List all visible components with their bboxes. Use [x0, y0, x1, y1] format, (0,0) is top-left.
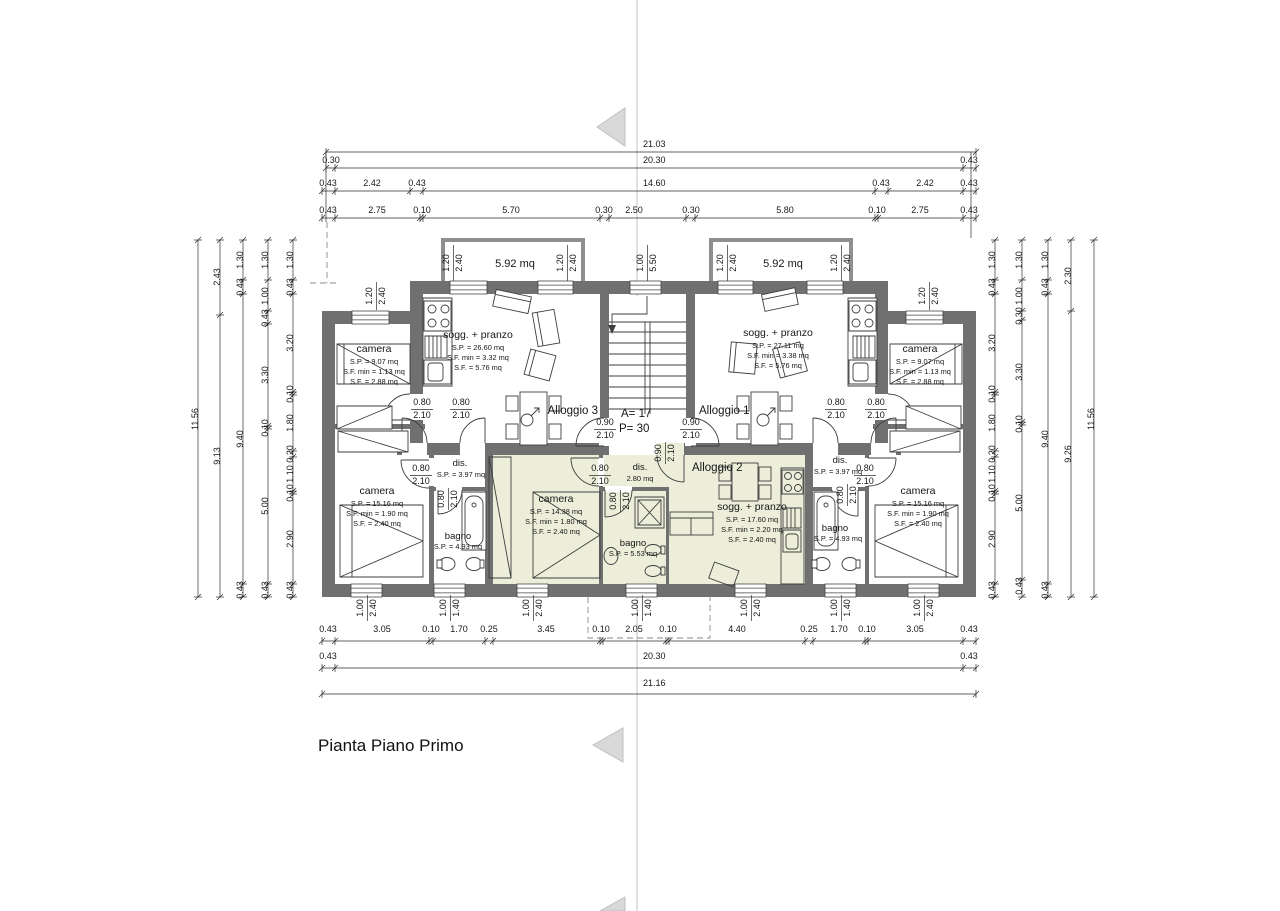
label: 3.20 — [285, 334, 295, 352]
label: S.P. = 15.16 mq — [892, 499, 944, 508]
label: 3.05 — [373, 624, 391, 634]
label: 21.03 — [643, 139, 666, 149]
label: 0.43 — [285, 278, 295, 296]
label: bagno — [822, 523, 848, 534]
label: 0.43 — [1040, 581, 1050, 599]
label: S.P. = 26.60 mq — [452, 343, 504, 352]
label: 1.10 — [987, 465, 997, 483]
kitchen-alloggio1 — [848, 298, 877, 386]
label: 1.20 — [441, 254, 451, 272]
label: 2.40 — [925, 599, 935, 617]
window — [434, 584, 465, 597]
label: 2.90 — [285, 530, 295, 548]
label: S.F. = 5.76 mq — [454, 363, 502, 372]
label: 0.25 — [800, 624, 818, 634]
label: 0.43 — [1014, 577, 1024, 595]
label: 2.75 — [368, 205, 386, 215]
label: 0.43 — [319, 205, 337, 215]
label: 1.00 — [739, 599, 749, 617]
label: camera — [356, 343, 391, 355]
label: 2.30 — [1063, 267, 1073, 285]
window — [450, 281, 487, 294]
label: 0.80 — [413, 397, 431, 407]
label: sogg. + pranzo — [717, 501, 787, 513]
kitchen-alloggio3 — [423, 298, 452, 386]
label: 0.80 — [436, 490, 446, 508]
label: 0.43 — [285, 581, 295, 599]
label: 0.80 — [412, 463, 430, 473]
label: 1.70 — [830, 624, 848, 634]
label: 2.10 — [412, 476, 430, 486]
label: 0.90 — [653, 444, 663, 462]
label: 0.20 — [987, 445, 997, 463]
label: 3.20 — [987, 334, 997, 352]
window — [352, 311, 389, 324]
label: 0.80 — [827, 397, 845, 407]
label: sogg. + pranzo — [443, 329, 513, 341]
label: 1.00 — [635, 254, 645, 272]
label: 1.40 — [842, 599, 852, 617]
label: S.F. = 2.88 mq — [896, 377, 944, 386]
label: 2.10 — [856, 476, 874, 486]
label: bagno — [620, 538, 646, 549]
label: 9.40 — [235, 430, 245, 448]
label: 9.26 — [1063, 445, 1073, 463]
label: S.F. = 2.40 mq — [894, 519, 942, 528]
label: 0.43 — [960, 651, 978, 661]
label: 0.25 — [480, 624, 498, 634]
label: 11.56 — [190, 408, 200, 430]
label: S.F. = 2.88 mq — [350, 377, 398, 386]
label: S.F. = 2.40 mq — [532, 527, 580, 536]
label: 1.00 — [521, 599, 531, 617]
label: 1.40 — [451, 599, 461, 617]
label: 2.40 — [930, 287, 940, 305]
label: 1.30 — [235, 251, 245, 269]
plan-title: Pianta Piano Primo — [318, 736, 464, 756]
label: 1.30 — [1014, 251, 1024, 269]
label: 0.10 — [260, 419, 270, 437]
label: 1.40 — [643, 599, 653, 617]
label: S.F. min = 3.38 mq — [747, 351, 809, 360]
label: 2.40 — [377, 287, 387, 305]
label: 3.45 — [537, 624, 555, 634]
label: 2.10 — [596, 430, 614, 440]
label: 0.10 — [413, 205, 431, 215]
label: 2.40 — [454, 254, 464, 272]
label: 5.80 — [776, 205, 794, 215]
label: 0.10 — [592, 624, 610, 634]
label: 2.40 — [842, 254, 852, 272]
label: S.P. = 3.97 mq — [437, 470, 485, 479]
window — [538, 281, 573, 294]
label: 0.30 — [322, 155, 340, 165]
label: sogg. + pranzo — [743, 327, 813, 339]
label: 21.16 — [643, 678, 666, 688]
label: 0.10 — [422, 624, 440, 634]
label: 0.10 — [659, 624, 677, 634]
label: S.F. min = 1.90 mq — [346, 509, 408, 518]
window — [351, 584, 382, 597]
label: S.P. = 3.97 mq — [814, 467, 862, 476]
label: 1.00 — [438, 599, 448, 617]
label: 0.80 — [835, 486, 845, 504]
label: 1.30 — [987, 251, 997, 269]
label: 5.92 mq — [763, 258, 803, 270]
label: 1.20 — [829, 254, 839, 272]
label: 1.20 — [555, 254, 565, 272]
label: 0.43 — [872, 178, 890, 188]
label: 0.43 — [960, 155, 978, 165]
label: 2.43 — [212, 268, 222, 286]
label: S.P. = 17.60 mq — [726, 515, 778, 524]
window — [718, 281, 753, 294]
label: 0.30 — [682, 205, 700, 215]
label: Alloggio 1 — [699, 405, 750, 417]
window — [807, 281, 843, 294]
label: 0.43 — [987, 278, 997, 296]
label: 2.40 — [568, 254, 578, 272]
label: 1.00 — [630, 599, 640, 617]
label: S.F. = 5.76 mq — [754, 361, 802, 370]
label: 0.43 — [960, 624, 978, 634]
label: 2.10 — [848, 486, 858, 504]
label: 0.43 — [319, 178, 337, 188]
label: 2.10 — [867, 410, 885, 420]
label: S.P. = 9.07 mq — [350, 357, 398, 366]
window — [517, 584, 548, 597]
floor-plan-drawing: 21.030.3020.300.430.432.420.4314.600.432… — [0, 0, 1280, 911]
window — [825, 584, 856, 597]
label: 1.30 — [1040, 251, 1050, 269]
label: S.P. = 15.16 mq — [351, 499, 403, 508]
label: 0.90 — [596, 417, 614, 427]
label: 0.20 — [285, 445, 295, 463]
window — [906, 311, 943, 324]
label: 2.10 — [682, 430, 700, 440]
label: 1.80 — [285, 414, 295, 432]
label: camera — [359, 485, 394, 497]
label: 0.43 — [408, 178, 426, 188]
label: S.F. min = 3.32 mq — [447, 353, 509, 362]
label: 5.00 — [1014, 494, 1024, 512]
label: 1.30 — [285, 251, 295, 269]
label: 0.43 — [319, 624, 337, 634]
label: S.P. = 9.07 mq — [896, 357, 944, 366]
label: 9.13 — [212, 447, 222, 465]
label: bagno — [445, 531, 471, 542]
window — [626, 584, 657, 597]
label: 1.30 — [260, 251, 270, 269]
label: S.P. = 27.11 mq — [752, 341, 804, 350]
window — [908, 584, 939, 597]
label: dis. — [833, 455, 848, 466]
label: 0.43 — [260, 309, 270, 327]
label: 9.40 — [1040, 430, 1050, 448]
label: 0.10 — [987, 385, 997, 403]
label: 2.90 — [987, 530, 997, 548]
label: 0.30 — [1014, 307, 1024, 325]
label: Alloggio 3 — [547, 405, 598, 417]
label: dis. — [453, 458, 468, 469]
label: 0.80 — [867, 397, 885, 407]
label: 0.43 — [960, 205, 978, 215]
label: 2.40 — [728, 254, 738, 272]
label: Alloggio 2 — [692, 462, 743, 474]
label: S.F. min = 1.90 mq — [887, 509, 949, 518]
label: A= 17 — [621, 408, 651, 420]
label: 2.42 — [916, 178, 934, 188]
label: 2.10 — [621, 492, 631, 510]
label: S.F. min = 1.13 mq — [343, 367, 405, 376]
label: 2.10 — [591, 476, 609, 486]
label: 20.30 — [643, 651, 666, 661]
window — [735, 584, 766, 597]
label: camera — [538, 493, 573, 505]
label: 0.30 — [595, 205, 613, 215]
label: 5.00 — [260, 497, 270, 515]
label: 2.10 — [827, 410, 845, 420]
label: 2.80 mq — [627, 474, 654, 483]
label: 5.70 — [502, 205, 520, 215]
label: 0.10 — [285, 484, 295, 502]
label: 14.60 — [643, 178, 666, 188]
label: 1.20 — [917, 287, 927, 305]
label: 0.43 — [987, 581, 997, 599]
label: 1.00 — [355, 599, 365, 617]
label: 2.10 — [449, 490, 459, 508]
label: camera — [902, 343, 937, 355]
label: 1.10 — [285, 465, 295, 483]
label: 2.40 — [368, 599, 378, 617]
label: dis. — [633, 462, 648, 473]
label: 5.92 mq — [495, 258, 535, 270]
label: 1.20 — [364, 287, 374, 305]
label: S.F. = 2.40 mq — [353, 519, 401, 528]
label: 0.10 — [858, 624, 876, 634]
label: 0.80 — [452, 397, 470, 407]
label: 1.80 — [987, 414, 997, 432]
label: 3.05 — [906, 624, 924, 634]
label: 1.00 — [1014, 287, 1024, 305]
drawing-sheet: 21.030.3020.300.430.432.420.4314.600.432… — [0, 0, 1280, 911]
label: 1.00 — [260, 287, 270, 305]
label: 2.75 — [911, 205, 929, 215]
label: 2.10 — [452, 410, 470, 420]
label: 2.40 — [752, 599, 762, 617]
label: S.P. = 14.38 mq — [530, 507, 582, 516]
label: S.F. min = 2.20 mq — [721, 525, 783, 534]
label: 1.00 — [829, 599, 839, 617]
label: 5.50 — [648, 254, 658, 272]
label: 0.80 — [608, 492, 618, 510]
label: S.F. min = 1.80 mq — [525, 517, 587, 526]
label: 2.10 — [666, 444, 676, 462]
label: 0.90 — [682, 417, 700, 427]
window — [630, 281, 661, 294]
label: S.F. = 2.40 mq — [728, 535, 776, 544]
label: 0.43 — [260, 581, 270, 599]
label: 0.80 — [591, 463, 609, 473]
label: 0.43 — [1040, 278, 1050, 296]
label: 3.30 — [1014, 363, 1024, 381]
label: 20.30 — [643, 155, 666, 165]
label: 1.00 — [912, 599, 922, 617]
label: 0.43 — [235, 278, 245, 296]
label: 2.42 — [363, 178, 381, 188]
label: 2.50 — [625, 205, 643, 215]
label: 0.10 — [285, 385, 295, 403]
label: S.F. min = 1.13 mq — [889, 367, 951, 376]
label: camera — [900, 485, 935, 497]
label: 2.05 — [625, 624, 643, 634]
label: 3.30 — [260, 366, 270, 384]
label: 0.43 — [319, 651, 337, 661]
label: 0.43 — [235, 581, 245, 599]
label: 11.56 — [1086, 408, 1096, 430]
label: 1.70 — [450, 624, 468, 634]
label: S.P. = 5.53 mq — [609, 549, 657, 558]
label: 1.20 — [715, 254, 725, 272]
label: 0.43 — [960, 178, 978, 188]
label: 4.40 — [728, 624, 746, 634]
label: P= 30 — [619, 423, 649, 435]
label: 2.40 — [534, 599, 544, 617]
label: 0.10 — [1014, 415, 1024, 433]
label: 0.10 — [868, 205, 886, 215]
label: S.P. = 4.93 mq — [814, 534, 862, 543]
label: 2.10 — [413, 410, 431, 420]
label: 0.10 — [987, 484, 997, 502]
label: S.P. = 4.93 mq — [434, 542, 482, 551]
